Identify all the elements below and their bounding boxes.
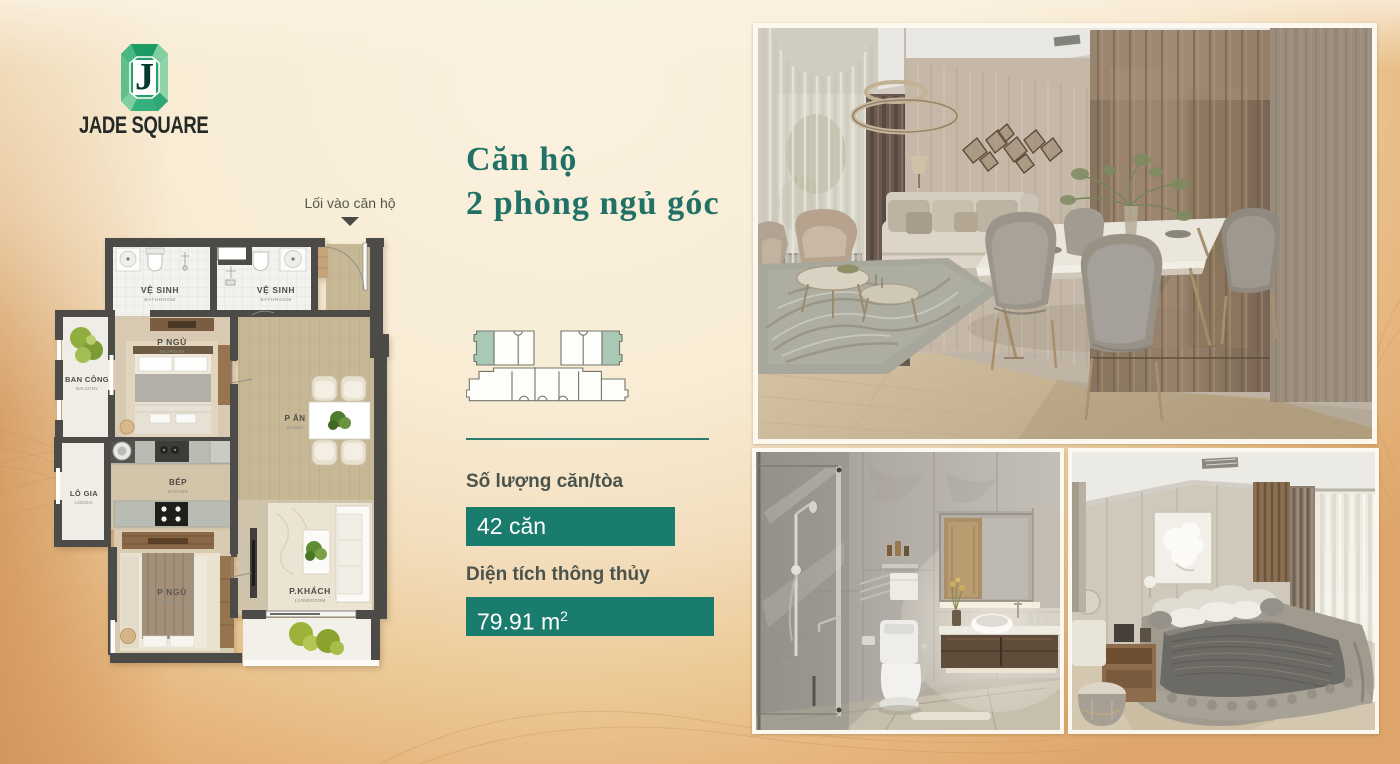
svg-text:LÔ GIA: LÔ GIA — [70, 489, 98, 498]
svg-text:BALCONY: BALCONY — [76, 386, 98, 391]
svg-text:DINING: DINING — [287, 425, 304, 430]
svg-text:J: J — [135, 56, 154, 98]
svg-text:BEDROOM: BEDROOM — [160, 599, 185, 605]
svg-text:VỆ SINH: VỆ SINH — [257, 284, 295, 295]
svg-text:P.KHÁCH: P.KHÁCH — [289, 586, 331, 596]
svg-text:LOGGIA: LOGGIA — [75, 500, 94, 505]
svg-text:LIVINGROOM: LIVINGROOM — [295, 598, 326, 604]
svg-text:P ĂN: P ĂN — [285, 414, 306, 423]
svg-text:BATHROOM: BATHROOM — [144, 297, 175, 303]
svg-text:VỆ SINH: VỆ SINH — [141, 284, 179, 295]
svg-text:P NGỦ: P NGỦ — [157, 586, 187, 597]
svg-text:BAN CÔNG: BAN CÔNG — [65, 375, 109, 384]
svg-text:BẾP: BẾP — [169, 477, 187, 487]
svg-text:P NGỦ: P NGỦ — [157, 336, 187, 347]
svg-text:BATHROOM: BATHROOM — [260, 297, 291, 303]
svg-text:KITCHEN: KITCHEN — [168, 489, 188, 494]
svg-text:BEDROOM: BEDROOM — [160, 349, 185, 355]
